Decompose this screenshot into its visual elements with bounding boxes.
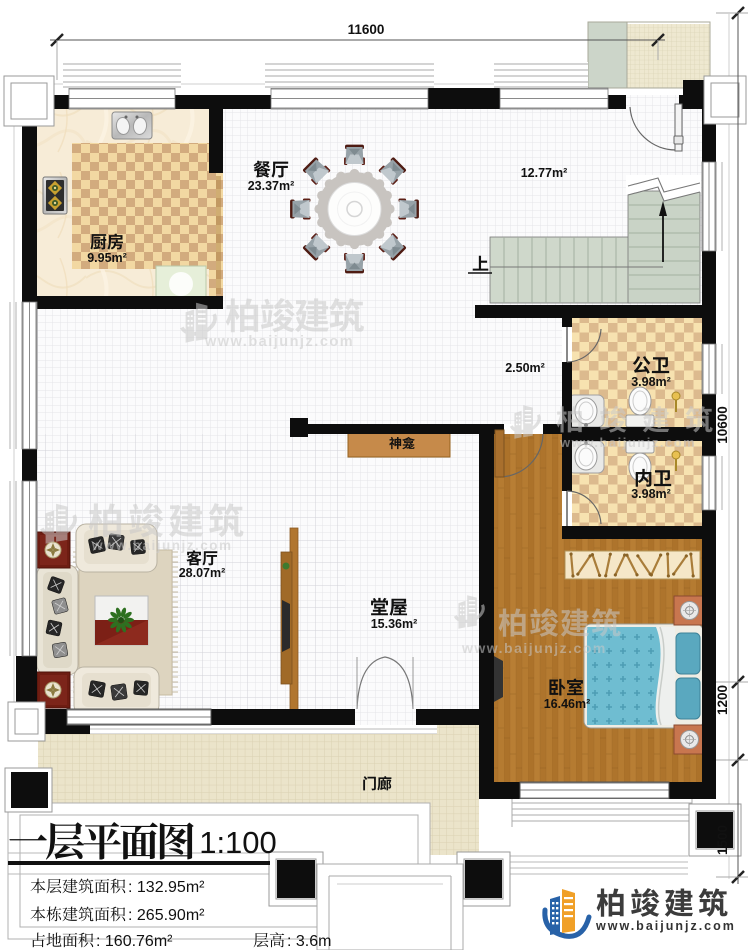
svg-text:12.77m²: 12.77m²: [521, 166, 568, 180]
svg-text:1:100: 1:100: [199, 825, 277, 860]
svg-text:www.baijunjz.com: www.baijunjz.com: [461, 640, 607, 656]
svg-text:3.98m²: 3.98m²: [631, 375, 671, 389]
svg-text:: 265.90m²: : 265.90m²: [128, 907, 205, 924]
svg-text:11600: 11600: [348, 22, 385, 37]
svg-text:1200: 1200: [715, 685, 730, 715]
svg-text:15.36m²: 15.36m²: [371, 617, 418, 631]
svg-text:: 160.76m²: : 160.76m²: [96, 933, 173, 950]
svg-text:16.46m²: 16.46m²: [544, 697, 591, 711]
svg-text:www.baijunjz.com: www.baijunjz.com: [91, 538, 233, 553]
svg-text:www.baijunjz.com: www.baijunjz.com: [559, 435, 696, 450]
svg-text:3.98m²: 3.98m²: [631, 487, 671, 501]
svg-text:10600: 10600: [715, 406, 730, 444]
svg-text:www.baijunjz.com: www.baijunjz.com: [204, 334, 354, 350]
svg-text:23.37m²: 23.37m²: [248, 179, 295, 193]
svg-text:28.07m²: 28.07m²: [179, 566, 226, 580]
svg-text:: 3.6m: : 3.6m: [287, 933, 331, 950]
svg-text:1500: 1500: [715, 825, 730, 855]
svg-text:: 132.95m²: : 132.95m²: [128, 879, 205, 896]
svg-text:2.50m²: 2.50m²: [505, 361, 545, 375]
svg-text:9.95m²: 9.95m²: [87, 251, 127, 265]
svg-text:www.baijunjz.com: www.baijunjz.com: [595, 919, 736, 933]
